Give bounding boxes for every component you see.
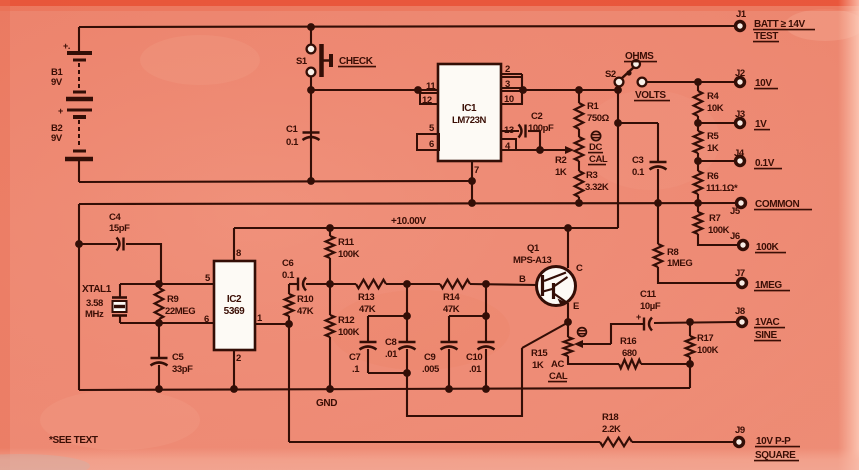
svg-text:6: 6	[429, 139, 434, 150]
svg-text:C8: C8	[385, 337, 396, 348]
svg-text:J7: J7	[735, 268, 745, 279]
svg-text:+: +	[58, 106, 63, 116]
svg-text:100K: 100K	[697, 345, 719, 356]
svg-text:XTAL1: XTAL1	[82, 284, 112, 295]
svg-text:TEST: TEST	[754, 31, 778, 42]
svg-text:+10.00V: +10.00V	[391, 216, 426, 227]
svg-text:1MEG: 1MEG	[667, 258, 692, 269]
svg-text:10µF: 10µF	[640, 301, 661, 312]
svg-text:33pF: 33pF	[172, 364, 193, 375]
svg-text:1K: 1K	[555, 167, 567, 178]
svg-text:6: 6	[204, 314, 209, 325]
svg-text:J1: J1	[736, 9, 747, 20]
svg-text:IC2: IC2	[227, 294, 242, 305]
svg-text:10V P-P: 10V P-P	[756, 436, 791, 447]
svg-text:MPS-A13: MPS-A13	[513, 255, 551, 266]
svg-text:47K: 47K	[297, 306, 314, 317]
svg-text:C3: C3	[632, 155, 643, 166]
svg-text:22MEG: 22MEG	[165, 306, 195, 317]
svg-text:J4: J4	[734, 148, 745, 159]
svg-text:IC1: IC1	[462, 103, 477, 114]
svg-text:R4: R4	[707, 91, 719, 102]
svg-text:*SEE TEXT: *SEE TEXT	[49, 435, 98, 446]
svg-text:C6: C6	[282, 258, 293, 269]
svg-text:2.2K: 2.2K	[602, 424, 621, 435]
svg-text:J9: J9	[735, 425, 745, 436]
svg-text:47K: 47K	[443, 304, 460, 315]
svg-text:R11: R11	[338, 237, 355, 248]
svg-text:3: 3	[505, 79, 510, 90]
svg-text:10V: 10V	[755, 78, 772, 89]
svg-text:C10: C10	[466, 352, 482, 363]
svg-text:DC: DC	[589, 142, 602, 153]
svg-text:R1: R1	[587, 101, 599, 112]
svg-text:R2: R2	[555, 155, 566, 166]
svg-text:8: 8	[236, 248, 241, 259]
svg-text:0.1: 0.1	[632, 167, 645, 178]
svg-text:B: B	[519, 274, 526, 285]
svg-text:100K: 100K	[756, 242, 779, 253]
svg-text:C7: C7	[349, 352, 360, 363]
svg-text:C5: C5	[172, 352, 184, 363]
svg-text:OHMS: OHMS	[625, 51, 654, 62]
svg-text:680: 680	[622, 348, 637, 359]
svg-text:5369: 5369	[224, 306, 245, 317]
svg-text:J8: J8	[735, 306, 745, 317]
svg-text:12: 12	[422, 95, 432, 106]
svg-text:Q1: Q1	[527, 243, 540, 254]
svg-text:R14: R14	[443, 292, 460, 303]
svg-text:100K: 100K	[708, 225, 730, 236]
svg-text:1MEG: 1MEG	[755, 280, 782, 291]
svg-text:R9: R9	[167, 294, 178, 305]
svg-text:10: 10	[504, 94, 514, 105]
svg-text:CAL: CAL	[549, 371, 568, 382]
svg-text:J5: J5	[730, 206, 741, 217]
svg-text:750Ω: 750Ω	[587, 113, 610, 124]
svg-text:S2: S2	[605, 69, 616, 80]
svg-text:R10: R10	[297, 294, 313, 305]
svg-text:C1: C1	[286, 124, 298, 135]
svg-text:C11: C11	[640, 289, 657, 300]
svg-text:CAL: CAL	[589, 154, 608, 165]
svg-text:9V: 9V	[51, 133, 63, 144]
svg-text:100K: 100K	[338, 327, 360, 338]
svg-text:J2: J2	[735, 68, 745, 79]
svg-text:0.1: 0.1	[286, 137, 299, 148]
svg-text:BATT ≥ 14V: BATT ≥ 14V	[754, 19, 805, 30]
svg-text:CHECK: CHECK	[339, 56, 374, 67]
svg-text:MHz: MHz	[85, 309, 104, 320]
svg-text:.005: .005	[422, 364, 440, 375]
svg-text:+.: +.	[63, 41, 70, 51]
svg-text:SQUARE: SQUARE	[755, 450, 796, 461]
svg-text:AC: AC	[551, 359, 564, 370]
svg-text:2: 2	[505, 64, 510, 75]
svg-text:47K: 47K	[359, 304, 376, 315]
svg-text:.01: .01	[385, 349, 398, 360]
svg-text:VOLTS: VOLTS	[635, 90, 666, 101]
svg-text:R6: R6	[707, 171, 718, 182]
svg-text:15pF: 15pF	[109, 223, 130, 234]
svg-text:R3: R3	[586, 170, 597, 181]
svg-text:.1: .1	[352, 364, 360, 375]
svg-text:R7: R7	[709, 213, 720, 224]
svg-text:1K: 1K	[532, 360, 544, 371]
svg-text:J6: J6	[730, 231, 740, 242]
svg-text:R17: R17	[697, 333, 713, 344]
svg-text:11: 11	[426, 81, 436, 92]
svg-text:E: E	[573, 301, 579, 312]
svg-text:1VAC: 1VAC	[755, 317, 780, 328]
svg-text:S1: S1	[296, 56, 308, 67]
svg-text:1V: 1V	[755, 119, 767, 130]
svg-text:+: +	[636, 312, 641, 322]
svg-text:111.1Ω*: 111.1Ω*	[706, 183, 738, 194]
svg-text:.01: .01	[469, 364, 482, 375]
svg-text:7: 7	[474, 165, 479, 176]
svg-text:0.1: 0.1	[282, 270, 295, 281]
svg-text:R13: R13	[358, 292, 374, 303]
svg-text:3.32K: 3.32K	[585, 182, 609, 193]
svg-text:COMMON: COMMON	[755, 199, 799, 210]
svg-text:3.58: 3.58	[86, 298, 103, 309]
svg-text:9V: 9V	[51, 77, 63, 88]
svg-text:R5: R5	[707, 131, 719, 142]
svg-text:J3: J3	[735, 109, 745, 120]
svg-text:R16: R16	[620, 336, 636, 347]
svg-text:C4: C4	[109, 212, 121, 223]
svg-text:2: 2	[236, 353, 241, 364]
svg-text:C2: C2	[531, 111, 542, 122]
svg-text:GND: GND	[316, 398, 337, 409]
svg-text:0.1V: 0.1V	[755, 158, 775, 169]
svg-text:R8: R8	[667, 247, 678, 258]
svg-text:R15: R15	[531, 348, 548, 359]
svg-text:C9: C9	[424, 352, 435, 363]
svg-text:1K: 1K	[707, 143, 719, 154]
svg-text:R12: R12	[338, 315, 354, 326]
svg-text:100K: 100K	[338, 249, 360, 260]
svg-text:R18: R18	[602, 412, 618, 423]
svg-text:C: C	[576, 263, 583, 274]
svg-text:10K: 10K	[707, 103, 724, 114]
svg-text:SINE: SINE	[755, 330, 777, 341]
svg-text:LM723N: LM723N	[452, 115, 487, 126]
